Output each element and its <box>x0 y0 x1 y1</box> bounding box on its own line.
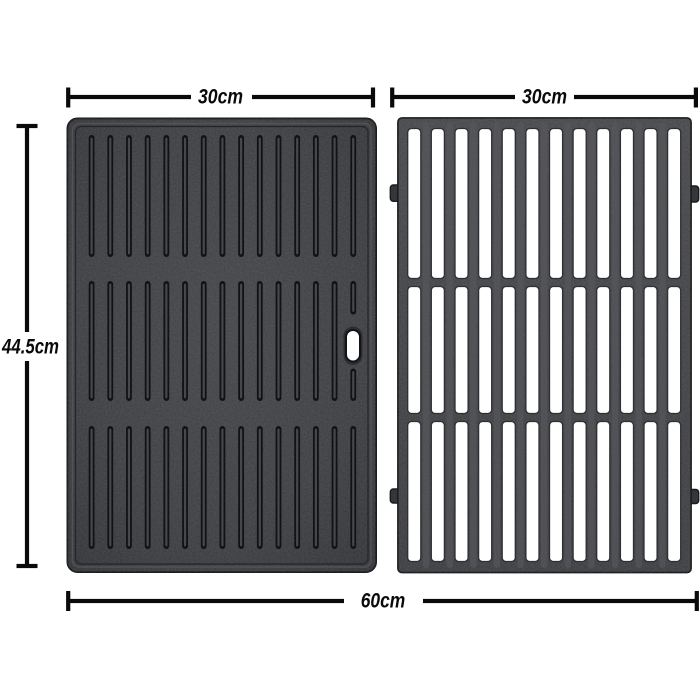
svg-text:30cm: 30cm <box>198 84 243 108</box>
svg-text:60cm: 60cm <box>361 588 406 612</box>
svg-text:44.5cm: 44.5cm <box>1 335 59 359</box>
svg-text:30cm: 30cm <box>522 84 567 108</box>
